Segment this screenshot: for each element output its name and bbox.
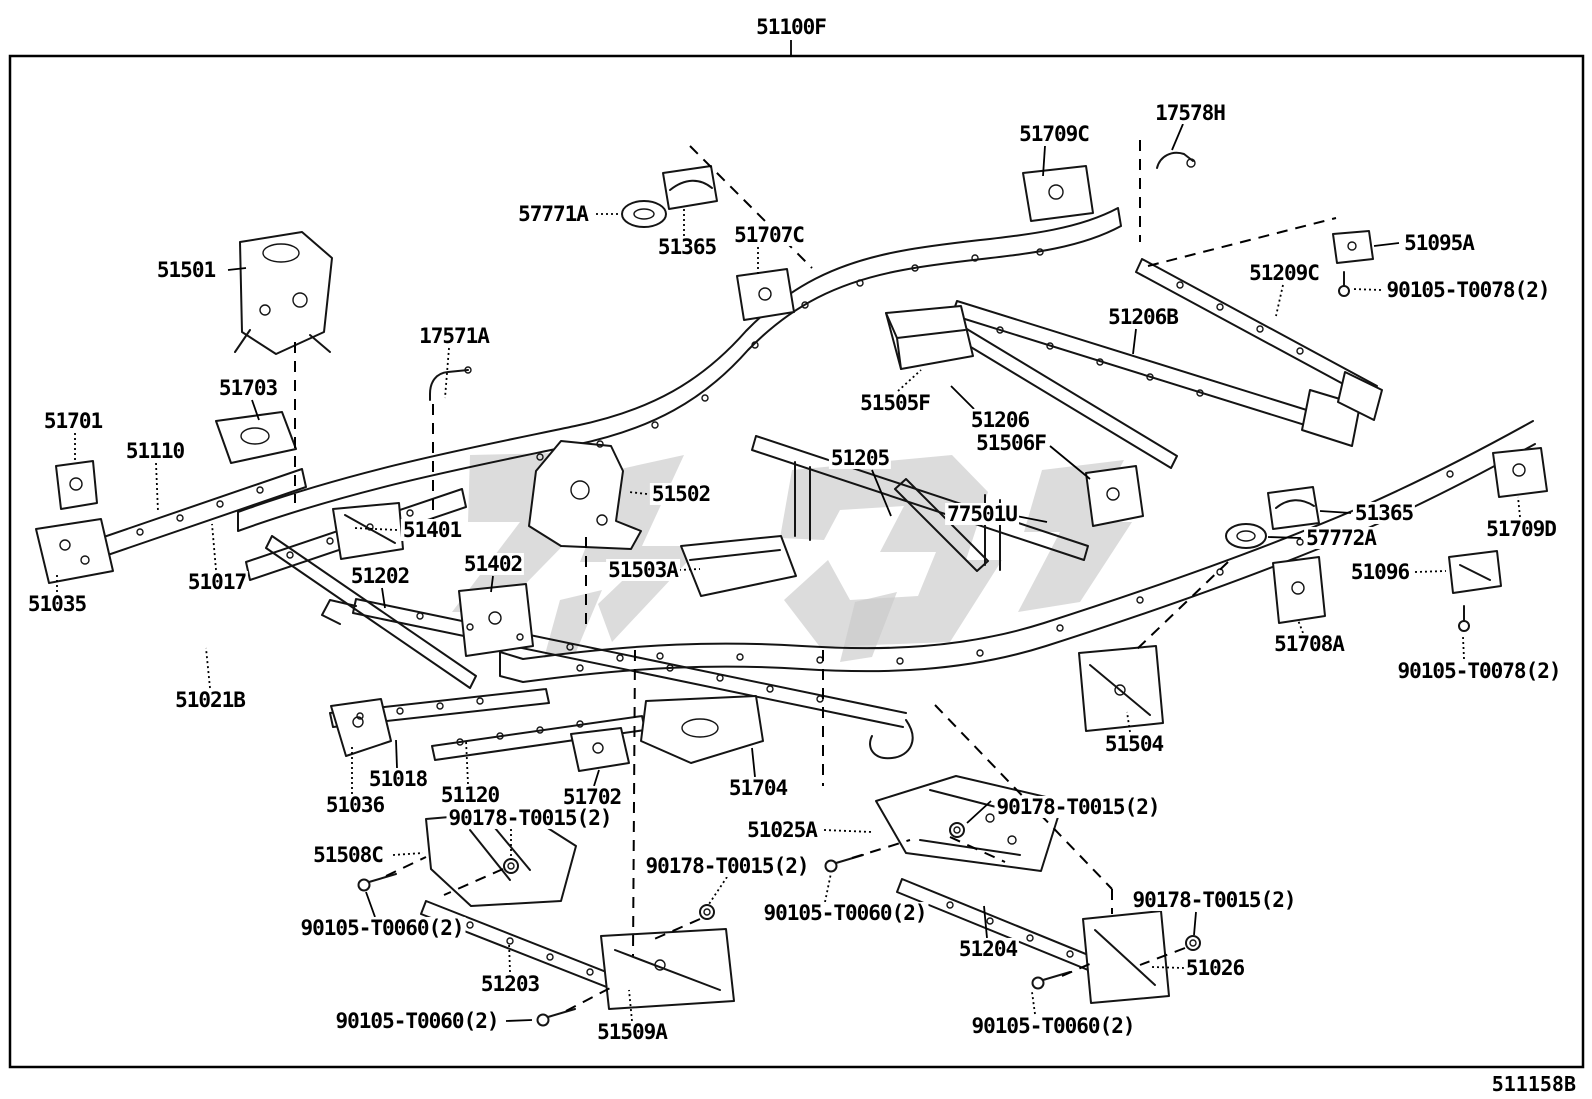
frame-illustration bbox=[0, 0, 1592, 1099]
leader-line bbox=[594, 770, 599, 786]
part-crossmember-51206b bbox=[952, 301, 1342, 435]
leader-line bbox=[898, 370, 921, 391]
part-hook-17578h bbox=[1157, 153, 1195, 168]
leader-line bbox=[1463, 637, 1464, 659]
nut-icon bbox=[700, 905, 714, 919]
leader-line bbox=[156, 463, 158, 512]
leader-line bbox=[1298, 620, 1303, 633]
leader-line bbox=[1518, 497, 1520, 517]
part-bracket-51025a bbox=[876, 776, 1063, 871]
leader-line bbox=[633, 650, 635, 956]
leader-line bbox=[1133, 329, 1136, 354]
part-bracket-51503a bbox=[681, 536, 796, 596]
leader-line bbox=[951, 386, 974, 409]
part-side-rail-upper bbox=[238, 208, 1121, 531]
leader-line bbox=[1136, 562, 1228, 650]
leader-line bbox=[206, 648, 210, 688]
leader-line bbox=[212, 524, 216, 570]
part-plate-51036 bbox=[331, 699, 391, 756]
leader-line bbox=[825, 873, 831, 902]
leader-line bbox=[1320, 511, 1351, 513]
part-bracket-51402 bbox=[459, 584, 533, 656]
part-plate-51035 bbox=[36, 519, 113, 583]
leader-line bbox=[366, 892, 375, 917]
part-bolt-90105-t0078-lower bbox=[1459, 606, 1469, 631]
leader-line bbox=[709, 877, 727, 904]
part-bracket-51709d bbox=[1493, 448, 1547, 497]
leader-line bbox=[1352, 289, 1381, 290]
leader-line bbox=[509, 942, 510, 972]
part-clip-51096 bbox=[1449, 551, 1501, 593]
bolt-icon bbox=[538, 1009, 576, 1026]
part-bolt-90105-t0078-upper bbox=[1339, 272, 1349, 296]
leader-line bbox=[1374, 243, 1399, 246]
part-bracket-51707c bbox=[737, 269, 794, 320]
part-bracket-51026 bbox=[1083, 911, 1169, 1003]
part-washer-57772a bbox=[1226, 524, 1266, 548]
leader-line bbox=[1276, 285, 1283, 316]
leader-line bbox=[1172, 124, 1183, 150]
part-bracket-51509a bbox=[601, 929, 734, 1009]
part-insulator-51505f bbox=[886, 306, 973, 369]
leader-line bbox=[824, 830, 872, 832]
leader-line bbox=[690, 146, 812, 268]
part-gusset-51401 bbox=[333, 503, 403, 559]
leader-line bbox=[1415, 571, 1446, 572]
bolt-icon bbox=[359, 874, 397, 891]
part-clamp-51365-left bbox=[663, 166, 717, 209]
part-bracket-51504 bbox=[1079, 646, 1163, 731]
part-bracket-51708a bbox=[1273, 557, 1325, 623]
part-bracket-51701 bbox=[56, 461, 97, 509]
part-plate-51704 bbox=[641, 696, 763, 763]
nut-icon bbox=[1186, 936, 1200, 950]
leader-line bbox=[1148, 218, 1336, 266]
leader-line bbox=[393, 853, 423, 855]
part-bracket-51095a bbox=[1333, 231, 1373, 263]
part-bracket-51508c bbox=[426, 811, 576, 906]
part-crossmember-51202 bbox=[266, 536, 476, 688]
leader-line bbox=[1032, 992, 1035, 1014]
parts-diagram-page: 51100F17578H51709C57771A5136551707C51095… bbox=[0, 0, 1592, 1099]
leader-line bbox=[466, 740, 468, 784]
leader-line bbox=[396, 740, 397, 768]
part-bracket-51702 bbox=[571, 728, 629, 771]
part-rail-51110 bbox=[92, 469, 306, 559]
leader-line bbox=[1268, 537, 1301, 538]
part-bracket-51501 bbox=[235, 232, 332, 354]
frame-parts-artwork bbox=[36, 153, 1547, 1026]
nut-icon bbox=[504, 859, 518, 873]
sheet-code: 511158B bbox=[1492, 1072, 1576, 1096]
leader-line bbox=[506, 1020, 532, 1021]
leader-line bbox=[1194, 912, 1196, 935]
leader-line bbox=[566, 987, 612, 1011]
part-mount-51506f bbox=[1086, 466, 1143, 526]
part-clamp-51365-right bbox=[1268, 487, 1319, 529]
part-bracket-51709c bbox=[1023, 166, 1093, 221]
part-rod-17571a bbox=[430, 367, 471, 400]
leader-line bbox=[386, 857, 426, 876]
leader-line bbox=[752, 748, 755, 777]
part-washer-57771a bbox=[622, 201, 666, 227]
part-crossmember-51206 bbox=[941, 317, 1177, 468]
nut-icon bbox=[950, 823, 964, 837]
part-bracket-51703 bbox=[216, 412, 296, 463]
bolt-icon bbox=[826, 855, 864, 872]
